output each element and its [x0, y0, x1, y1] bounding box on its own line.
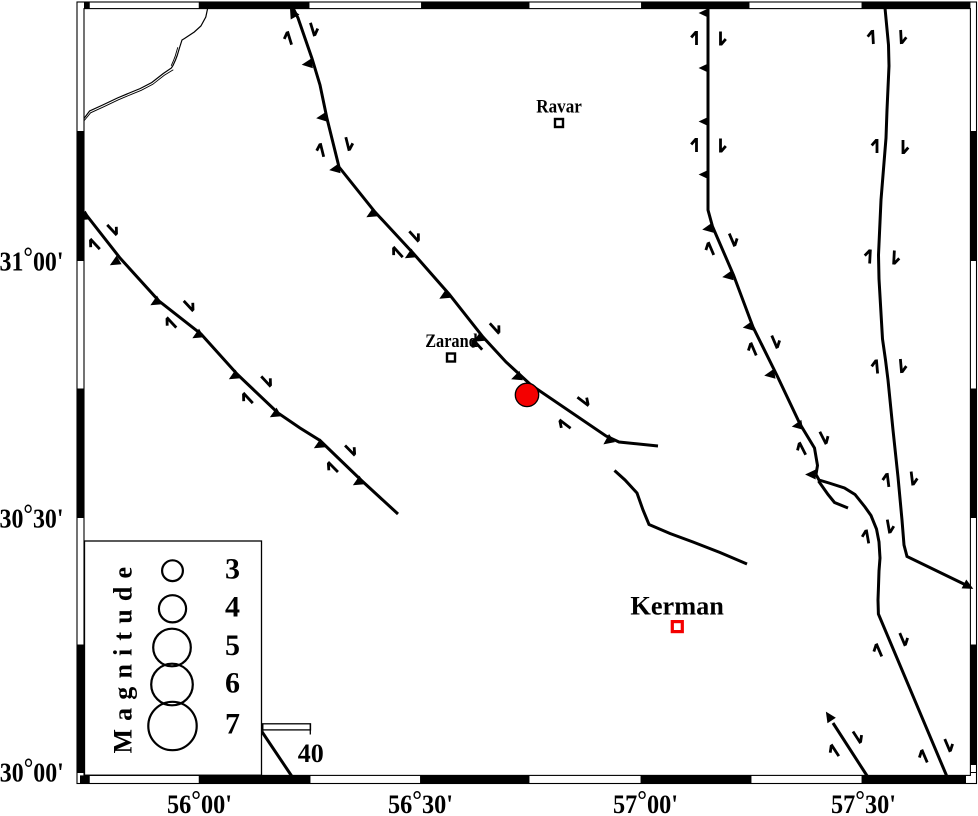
svg-text:56°30': 56°30'	[388, 786, 453, 816]
svg-text:Kerman: Kerman	[630, 592, 724, 621]
svg-text:Zarand: Zarand	[425, 331, 478, 352]
svg-text:57°30': 57°30'	[831, 786, 896, 816]
svg-text:56°00': 56°00'	[167, 786, 232, 816]
svg-text:40: 40	[298, 739, 324, 768]
svg-text:7: 7	[225, 708, 240, 741]
svg-text:3: 3	[225, 553, 240, 586]
svg-text:30°30': 30°30'	[0, 499, 64, 534]
svg-text:Ravar: Ravar	[536, 97, 582, 118]
svg-text:4: 4	[225, 591, 240, 624]
svg-text:31°00': 31°00'	[0, 242, 64, 277]
svg-text:5: 5	[225, 629, 240, 662]
svg-text:6: 6	[225, 667, 240, 700]
svg-text:30°00': 30°00'	[0, 753, 64, 788]
svg-text:57°00': 57°00'	[613, 786, 678, 816]
